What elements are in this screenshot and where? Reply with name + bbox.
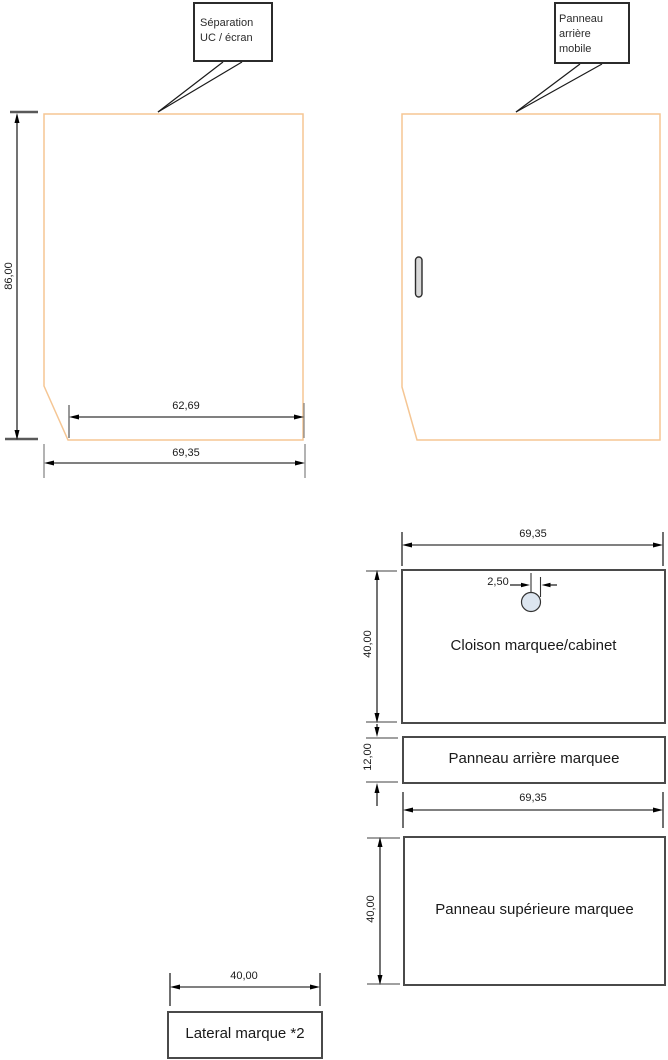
dim-width-69-cloison: 69,35 <box>503 528 563 540</box>
technical-drawing-canvas: Séparation UC / écran Panneau arrière mo… <box>0 0 668 1060</box>
callout-leader-line <box>158 62 242 112</box>
mobile-panel-view <box>402 64 660 440</box>
lateral-view <box>168 973 322 1058</box>
dim-hole-2-50: 2,50 <box>484 576 512 588</box>
dim-width-62: 62,69 <box>156 400 216 412</box>
callout-leader-line <box>516 64 580 112</box>
callout-leader-line <box>516 64 602 112</box>
cloison-view <box>366 532 665 723</box>
callout-separation: Séparation UC / écran <box>193 2 273 62</box>
dim-width-40-lateral: 40,00 <box>214 970 274 982</box>
door-handle <box>416 257 423 297</box>
cloison-label: Cloison marquee/cabinet <box>402 637 665 654</box>
dim-height-12: 12,00 <box>362 735 374 779</box>
mounting-hole <box>522 593 541 612</box>
panneau-arriere-label: Panneau arrière marquee <box>403 750 665 767</box>
dim-height-40-cloison: 40,00 <box>362 622 374 666</box>
dim-height-86: 86,00 <box>3 254 15 298</box>
separation-panel-outline <box>44 114 303 440</box>
lateral-label: Lateral marque *2 <box>168 1025 322 1042</box>
panneau-superieure-label: Panneau supérieure marquee <box>404 901 665 918</box>
dim-width-69-arriere: 69,35 <box>503 792 563 804</box>
callout-mobile: Panneau arrière mobile <box>554 2 630 64</box>
dim-width-69-left: 69,35 <box>156 447 216 459</box>
dim-height-40-superieure: 40,00 <box>365 887 377 931</box>
separation-panel-view <box>5 62 305 478</box>
mobile-panel-outline <box>402 114 660 440</box>
panneau-arriere-view <box>366 724 665 828</box>
callout-leader-line <box>158 62 223 112</box>
